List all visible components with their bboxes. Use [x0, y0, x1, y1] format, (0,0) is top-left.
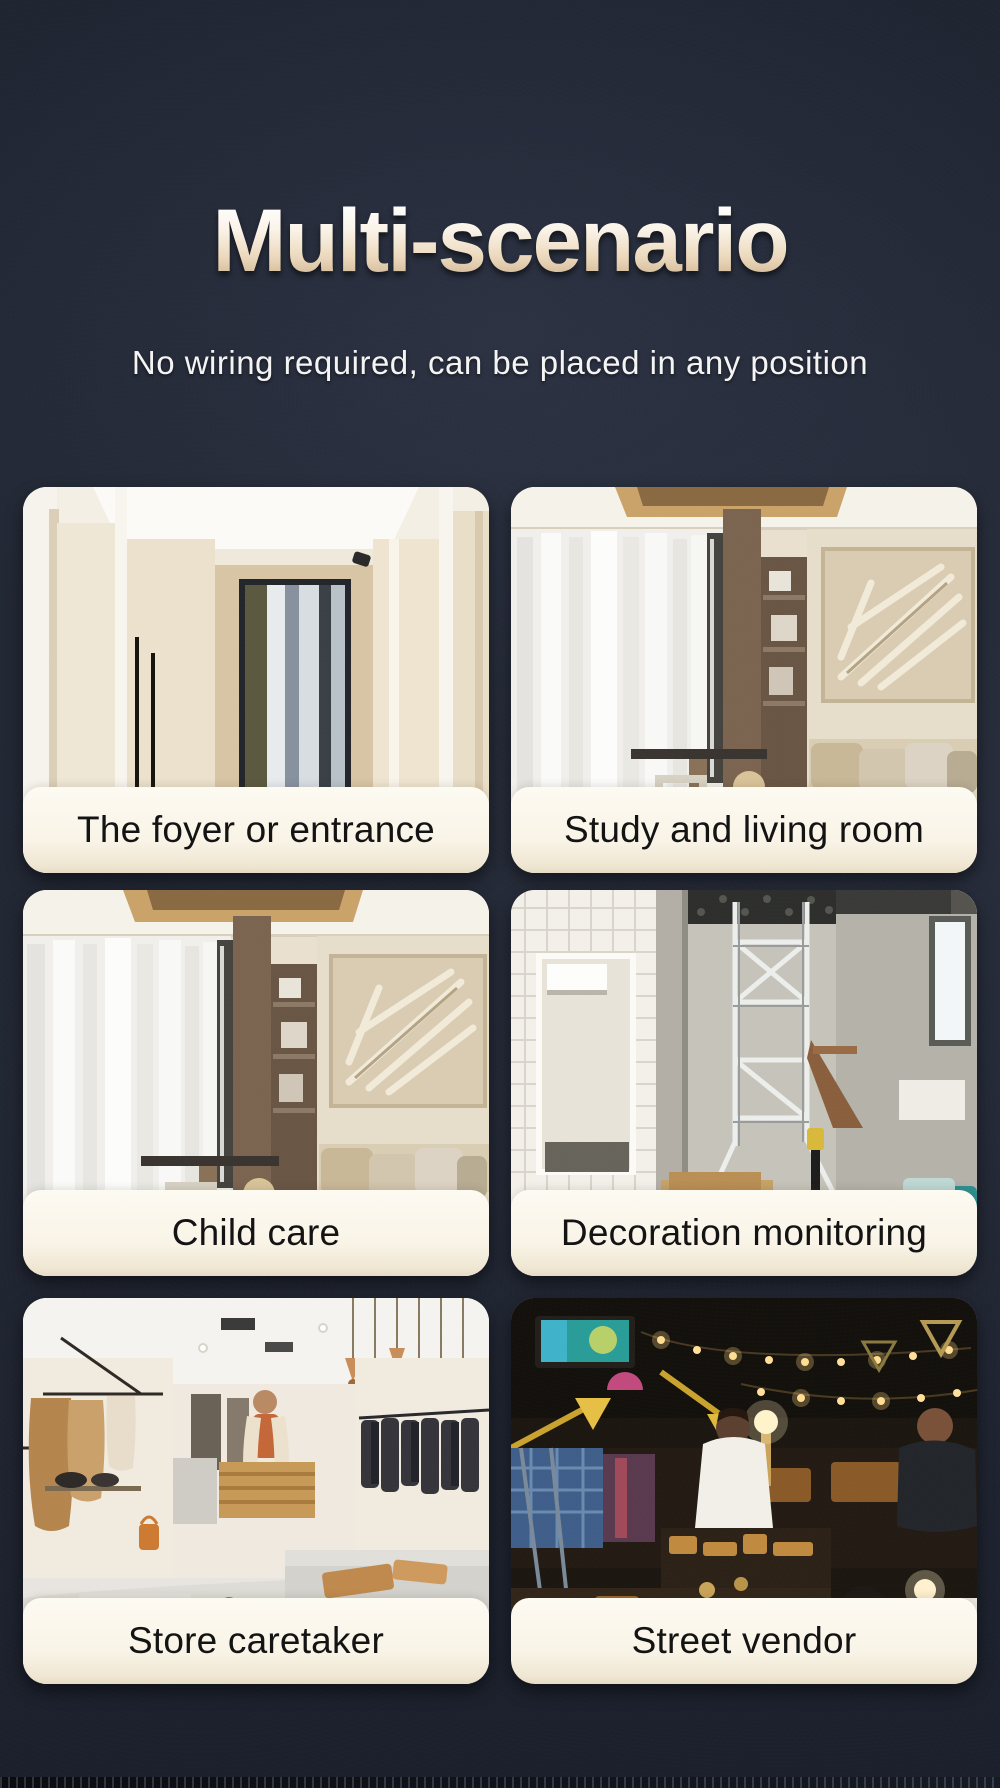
multi-scenario-banner: Multi-scenario No wiring required, can b… [0, 0, 1000, 1788]
card-label: Child care [172, 1212, 341, 1254]
card-label-panel: Study and living room [511, 787, 977, 873]
card-label: Decoration monitoring [561, 1212, 927, 1254]
scenario-card-decoration: Decoration monitoring [511, 890, 977, 1276]
card-label-panel: Store caretaker [23, 1598, 489, 1684]
card-label-panel: Street vendor [511, 1598, 977, 1684]
next-section-edge [0, 1777, 1000, 1788]
scenario-card-living-room: Study and living room [511, 487, 977, 873]
card-label: Store caretaker [128, 1620, 384, 1662]
card-label: The foyer or entrance [77, 809, 435, 851]
page-title: Multi-scenario [0, 196, 1000, 285]
page-subtitle: No wiring required, can be placed in any… [0, 344, 1000, 382]
scenario-card-street-vendor: Street vendor [511, 1298, 977, 1684]
card-label: Street vendor [632, 1620, 857, 1662]
card-label-panel: Decoration monitoring [511, 1190, 977, 1276]
card-label-panel: Child care [23, 1190, 489, 1276]
card-label: Study and living room [564, 809, 924, 851]
scenario-card-store: Store caretaker [23, 1298, 489, 1684]
card-label-panel: The foyer or entrance [23, 787, 489, 873]
scenario-card-child-care: Child care [23, 890, 489, 1276]
scenario-card-foyer: The foyer or entrance [23, 487, 489, 873]
